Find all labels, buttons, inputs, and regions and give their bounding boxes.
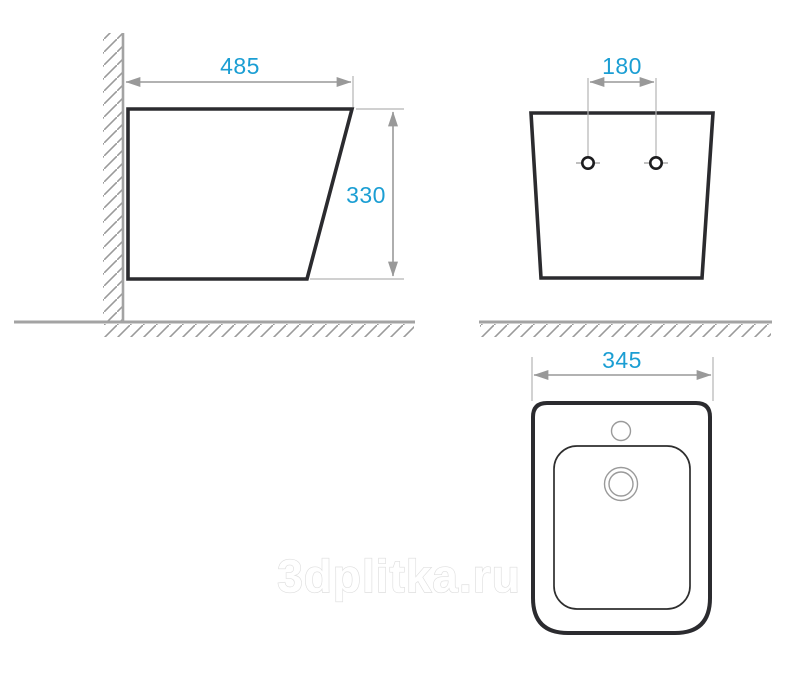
bidet-front-outline — [531, 113, 713, 278]
side-width-dimension: 485 — [126, 53, 353, 107]
hole-spacing-label: 180 — [602, 53, 642, 79]
side-height-label: 330 — [346, 182, 386, 208]
wall-hatching — [103, 33, 122, 322]
front-view: 180 — [479, 53, 772, 337]
diagram-page: 485 330 — [0, 0, 800, 693]
front-floor-hatching — [480, 324, 771, 337]
top-width-label: 345 — [602, 347, 642, 373]
watermark: 3dplitka.ru — [277, 550, 521, 602]
drain — [605, 468, 638, 501]
faucet-hole — [612, 422, 631, 441]
bidet-dimension-diagram: 485 330 — [0, 0, 800, 693]
top-view: 345 — [532, 347, 713, 633]
mounting-hole-left — [582, 157, 593, 168]
mounting-hole-right — [650, 157, 661, 168]
side-view: 485 330 — [14, 33, 415, 337]
side-floor-hatching — [104, 324, 414, 337]
bidet-side-profile — [128, 109, 352, 279]
top-width-dimension: 345 — [532, 347, 713, 401]
side-width-label: 485 — [220, 53, 260, 79]
